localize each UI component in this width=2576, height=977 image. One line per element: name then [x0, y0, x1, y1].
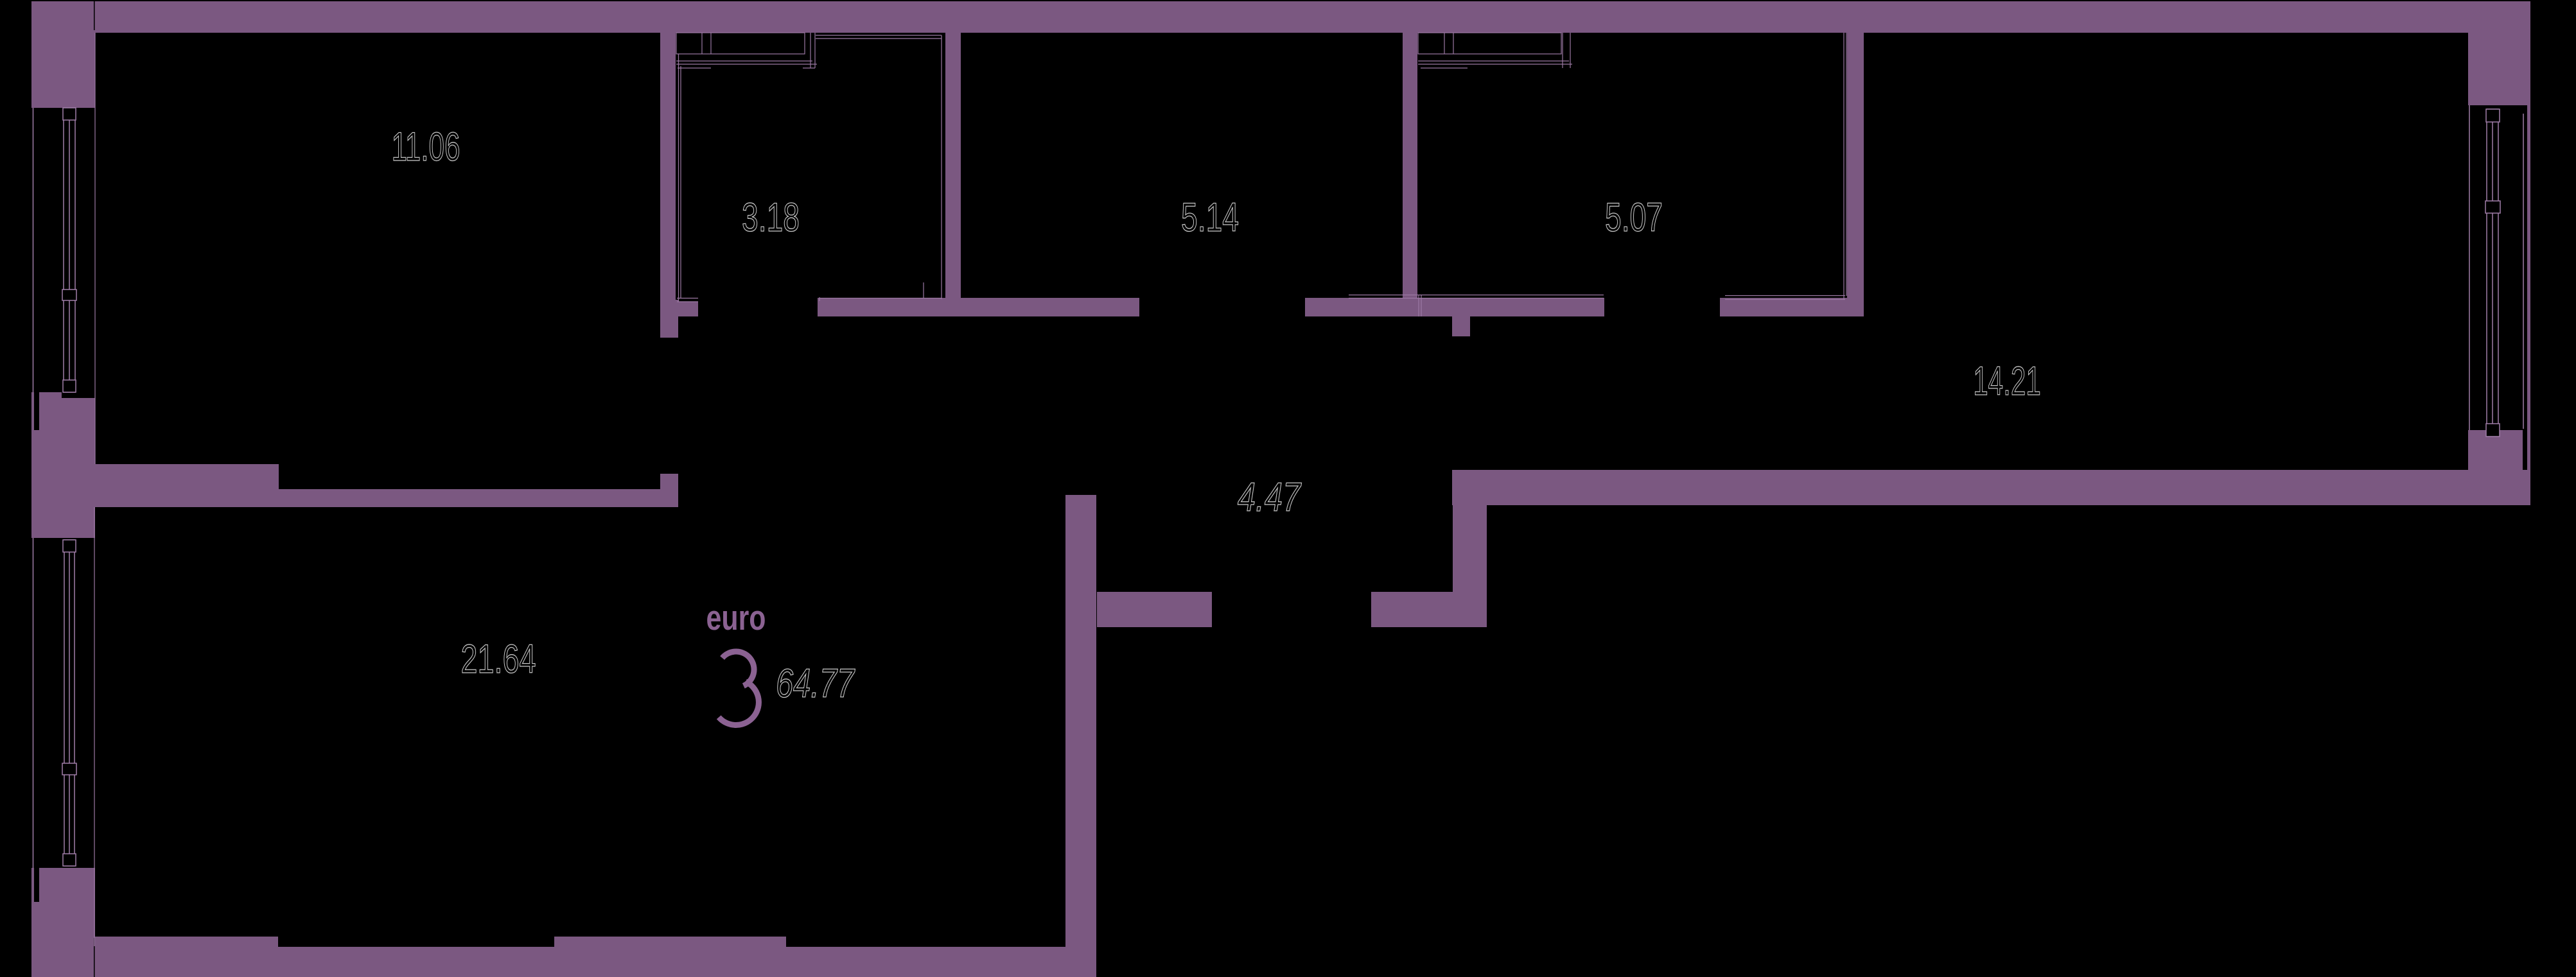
svg-text:5.07: 5.07	[1605, 195, 1663, 240]
svg-text:14.21: 14.21	[1973, 359, 2041, 404]
svg-text:3.18: 3.18	[742, 195, 800, 240]
svg-text:11.06: 11.06	[391, 124, 460, 169]
svg-text:4.47: 4.47	[1238, 475, 1302, 521]
svg-text:21.64: 21.64	[461, 636, 536, 681]
svg-text:euro: euro	[706, 598, 766, 637]
svg-text:64.77: 64.77	[776, 661, 855, 705]
svg-text:5.14: 5.14	[1181, 195, 1239, 240]
